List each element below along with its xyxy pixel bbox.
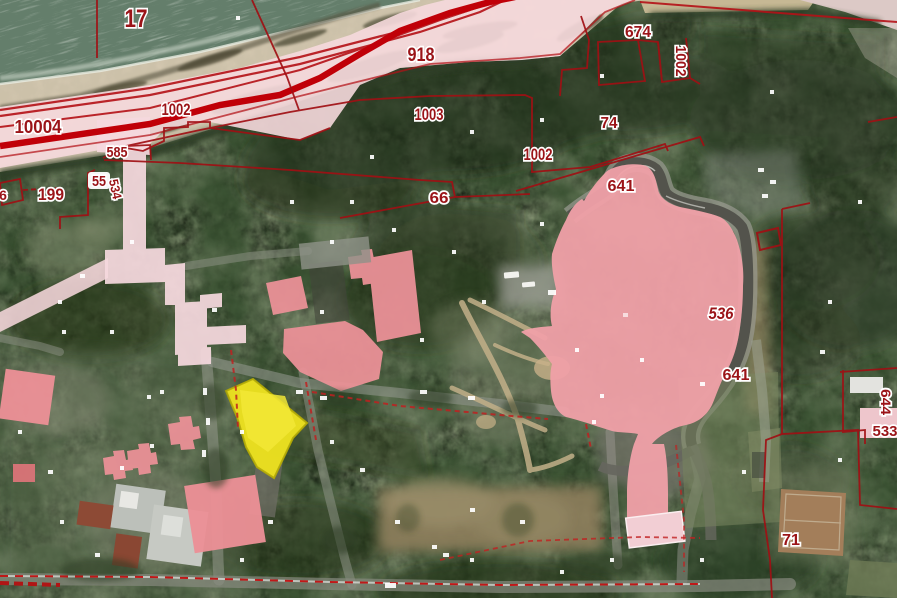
svg-text:74: 74	[601, 115, 618, 132]
svg-text:918: 918	[408, 45, 435, 66]
svg-text:641: 641	[608, 178, 635, 195]
svg-text:1002: 1002	[162, 100, 191, 119]
svg-text:17: 17	[125, 5, 148, 33]
svg-text:66: 66	[430, 190, 449, 207]
svg-text:644: 644	[878, 389, 894, 415]
svg-text:199: 199	[38, 185, 64, 204]
svg-text:1003: 1003	[415, 105, 444, 124]
svg-text:1002: 1002	[672, 46, 689, 77]
svg-text:585: 585	[107, 144, 128, 161]
svg-text:55: 55	[92, 173, 106, 190]
svg-text:10004: 10004	[15, 116, 63, 137]
svg-text:1002: 1002	[524, 145, 553, 164]
svg-text:536: 536	[709, 304, 734, 323]
svg-text:533: 533	[873, 423, 897, 440]
svg-text:71: 71	[782, 532, 800, 549]
svg-text:6: 6	[0, 187, 7, 203]
svg-text:641: 641	[723, 367, 750, 384]
svg-text:674: 674	[625, 24, 651, 41]
